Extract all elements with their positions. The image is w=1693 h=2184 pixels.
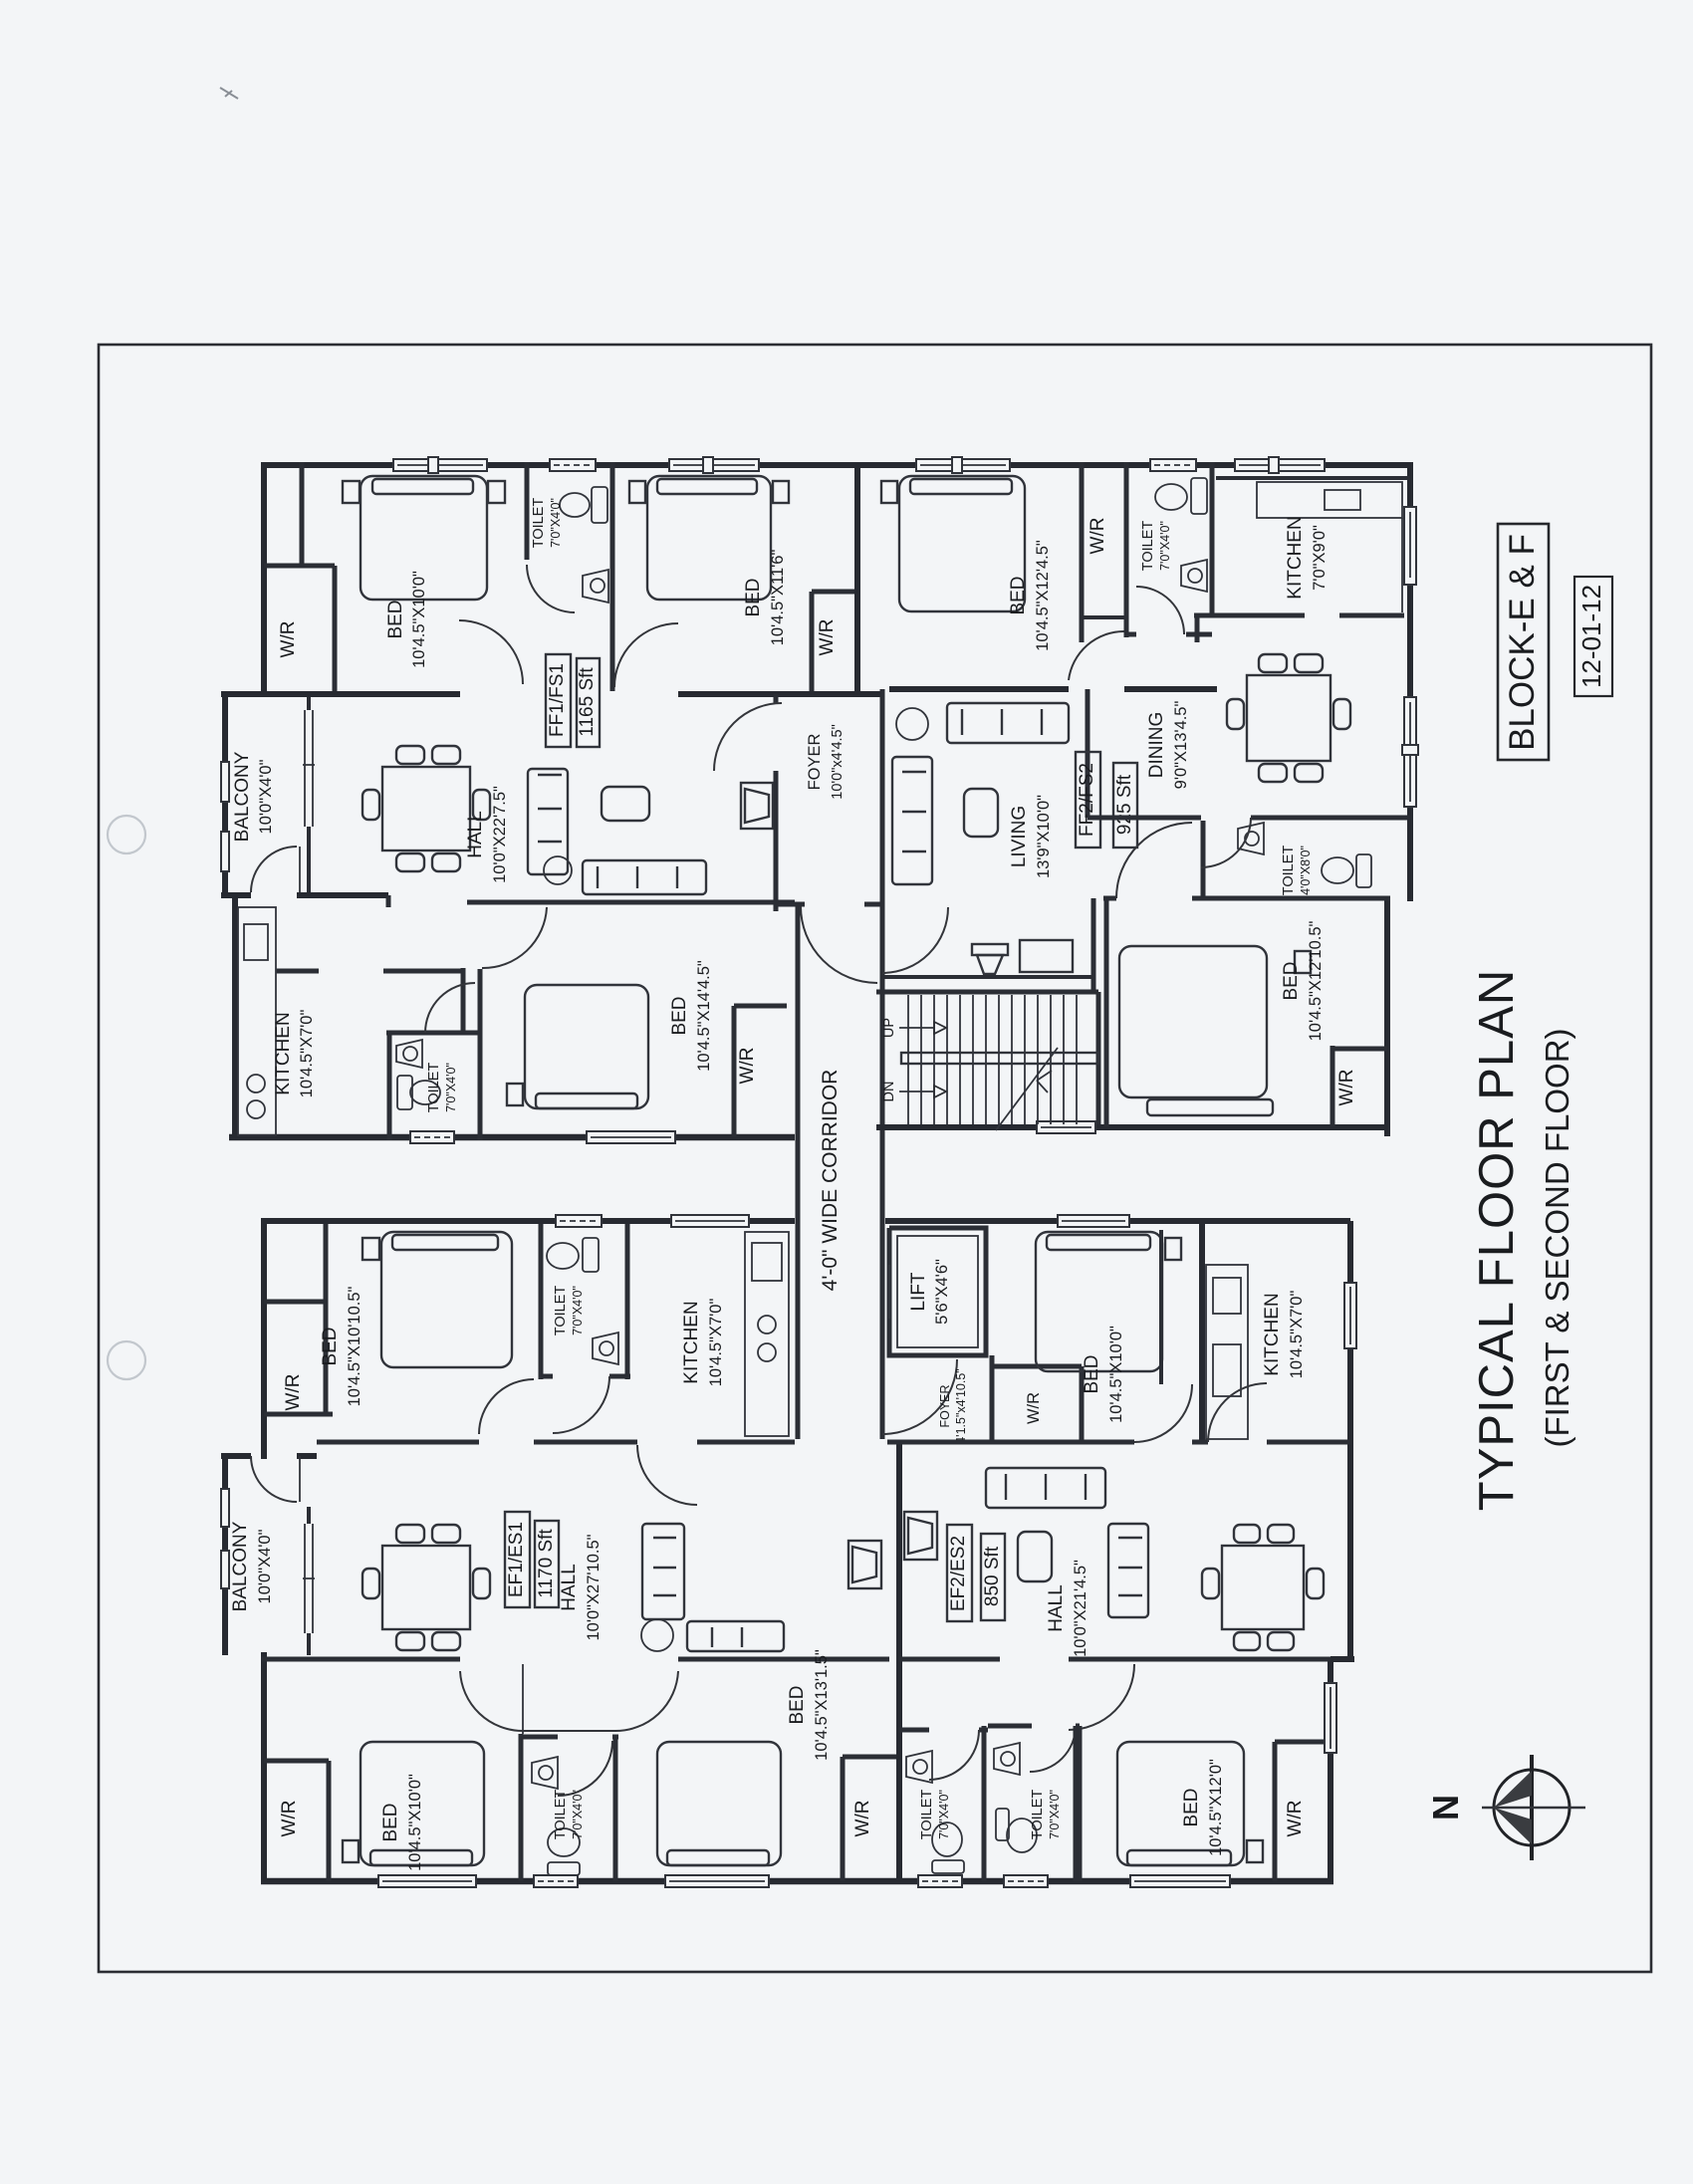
svg-text:HALL: HALL: [465, 811, 486, 858]
svg-text:BED: BED: [1082, 1354, 1102, 1393]
svg-text:10'4.5"X12'10.5": 10'4.5"X12'10.5": [1307, 920, 1325, 1041]
svg-text:BED: BED: [669, 996, 690, 1035]
svg-text:N: N: [1425, 1795, 1466, 1820]
svg-text:TOILET: TOILET: [553, 1790, 569, 1840]
svg-text:TOILET: TOILET: [1140, 521, 1156, 572]
svg-text:10'0"X22'7.5": 10'0"X22'7.5": [491, 786, 509, 883]
svg-text:BED: BED: [1181, 1788, 1202, 1826]
svg-text:10'0"x4'4.5": 10'0"x4'4.5": [830, 724, 846, 800]
svg-text:BALCONY: BALCONY: [232, 751, 253, 842]
svg-text:KITCHEN: KITCHEN: [273, 1012, 294, 1094]
svg-text:(FIRST & SECOND FLOOR): (FIRST & SECOND FLOOR): [1539, 1028, 1575, 1447]
svg-text:TYPICAL FLOOR PLAN: TYPICAL FLOOR PLAN: [1470, 969, 1524, 1511]
svg-text:BED: BED: [1008, 576, 1029, 614]
svg-text:10'4.5"X10'0": 10'4.5"X10'0": [406, 1774, 424, 1871]
svg-text:FOYER: FOYER: [806, 733, 824, 790]
svg-text:850 Sft: 850 Sft: [982, 1546, 1003, 1606]
svg-text:TOILET: TOILET: [1281, 846, 1297, 896]
svg-text:4'-0" WIDE CORRIDOR: 4'-0" WIDE CORRIDOR: [819, 1070, 842, 1292]
svg-text:W/R: W/R: [278, 621, 299, 658]
svg-text:10'4.5"X7'0": 10'4.5"X7'0": [707, 1299, 725, 1387]
svg-text:7'0"X4'0": 7'0"X4'0": [571, 1790, 585, 1839]
svg-text:TOILET: TOILET: [531, 498, 547, 549]
svg-text:1170 Sft: 1170 Sft: [536, 1529, 557, 1598]
svg-text:10'4.5"X7'0": 10'4.5"X7'0": [298, 1010, 316, 1098]
svg-text:TOILET: TOILET: [426, 1063, 442, 1113]
svg-text:W/R: W/R: [852, 1801, 873, 1837]
svg-text:10'4.5"X11'6": 10'4.5"X11'6": [769, 550, 787, 646]
svg-text:7'0"X4'0": 7'0"X4'0": [1048, 1790, 1062, 1839]
svg-text:TOILET: TOILET: [553, 1286, 569, 1336]
svg-text:BED: BED: [743, 578, 764, 616]
svg-text:W/R: W/R: [283, 1374, 304, 1411]
svg-text:10'4.5"X12'4.5": 10'4.5"X12'4.5": [1034, 540, 1052, 651]
svg-text:925 Sft: 925 Sft: [1114, 774, 1135, 835]
svg-text:10'4.5"X10'0": 10'4.5"X10'0": [410, 571, 428, 668]
svg-text:BED: BED: [1281, 961, 1302, 1000]
svg-text:13'9"X10'0": 13'9"X10'0": [1035, 795, 1053, 878]
svg-text:7'0"X9'0": 7'0"X9'0": [1311, 525, 1329, 591]
svg-text:W/R: W/R: [817, 619, 838, 656]
svg-text:7'0"X4'0": 7'0"X4'0": [444, 1063, 458, 1112]
svg-text:BED: BED: [380, 1803, 401, 1841]
svg-text:EF1/ES1: EF1/ES1: [506, 1522, 527, 1597]
svg-text:W/R: W/R: [1285, 1801, 1306, 1837]
svg-text:4'0"X8'0": 4'0"X8'0": [1299, 846, 1313, 895]
svg-text:10'4.5"X14'4.5": 10'4.5"X14'4.5": [695, 960, 713, 1072]
svg-text:TOILET: TOILET: [919, 1790, 935, 1840]
svg-text:FF2/FS2: FF2/FS2: [1077, 763, 1097, 837]
svg-text:BED: BED: [320, 1327, 341, 1365]
svg-text:10'0"X21'4.5": 10'0"X21'4.5": [1072, 1560, 1089, 1657]
svg-text:12-01-12: 12-01-12: [1576, 585, 1606, 688]
svg-text:LIVING: LIVING: [1009, 806, 1030, 867]
svg-text:10'0"X4'0": 10'0"X4'0": [256, 1529, 274, 1603]
svg-text:DN: DN: [881, 1082, 897, 1102]
svg-text:10'4.5"X10'10.5": 10'4.5"X10'10.5": [346, 1286, 363, 1406]
svg-text:HALL: HALL: [1046, 1584, 1067, 1632]
svg-text:W/R: W/R: [737, 1048, 758, 1085]
svg-text:W/R: W/R: [1025, 1392, 1043, 1424]
svg-text:10'0"X4'0": 10'0"X4'0": [257, 759, 275, 834]
svg-text:HALL: HALL: [559, 1564, 580, 1611]
svg-text:EF2/ES2: EF2/ES2: [948, 1536, 969, 1611]
svg-text:FOYER: FOYER: [938, 1384, 952, 1427]
svg-text:BED: BED: [385, 600, 406, 638]
svg-text:10'4.5"X10'0": 10'4.5"X10'0": [1107, 1326, 1125, 1423]
svg-text:5'6"X4'6": 5'6"X4'6": [933, 1259, 951, 1325]
svg-text:UP: UP: [881, 1018, 897, 1038]
svg-text:4'1.5"x4'10.5": 4'1.5"x4'10.5": [954, 1368, 968, 1444]
svg-text:7'0"X4'0": 7'0"X4'0": [937, 1790, 951, 1839]
svg-text:DINING: DINING: [1146, 712, 1167, 779]
svg-text:KITCHEN: KITCHEN: [1262, 1293, 1283, 1375]
svg-text:7'0"X4'0": 7'0"X4'0": [1158, 521, 1172, 571]
svg-text:W/R: W/R: [1088, 518, 1108, 555]
svg-text:10'4.5"X13'1.5": 10'4.5"X13'1.5": [813, 1649, 831, 1761]
svg-text:BLOCK-E & F: BLOCK-E & F: [1503, 534, 1542, 751]
svg-text:BALCONY: BALCONY: [230, 1521, 251, 1611]
svg-text:TOILET: TOILET: [1030, 1790, 1046, 1840]
svg-text:W/R: W/R: [1336, 1070, 1357, 1106]
svg-text:7'0"X4'0": 7'0"X4'0": [549, 498, 563, 548]
svg-text:W/R: W/R: [279, 1801, 300, 1837]
svg-text:KITCHEN: KITCHEN: [681, 1301, 702, 1383]
svg-text:10'4.5"X7'0": 10'4.5"X7'0": [1288, 1291, 1306, 1379]
svg-text:FF1/FS1: FF1/FS1: [547, 663, 568, 737]
svg-text:BED: BED: [787, 1685, 808, 1724]
svg-text:1165 Sft: 1165 Sft: [577, 667, 598, 737]
svg-text:LIFT: LIFT: [908, 1272, 929, 1311]
svg-text:9'0"X13'4.5": 9'0"X13'4.5": [1172, 701, 1190, 790]
svg-text:KITCHEN: KITCHEN: [1285, 516, 1306, 599]
svg-text:10'0"X27'10.5": 10'0"X27'10.5": [585, 1534, 603, 1640]
svg-text:7'0"X4'0": 7'0"X4'0": [571, 1286, 585, 1335]
svg-text:10'4.5"X12'0": 10'4.5"X12'0": [1207, 1759, 1225, 1856]
